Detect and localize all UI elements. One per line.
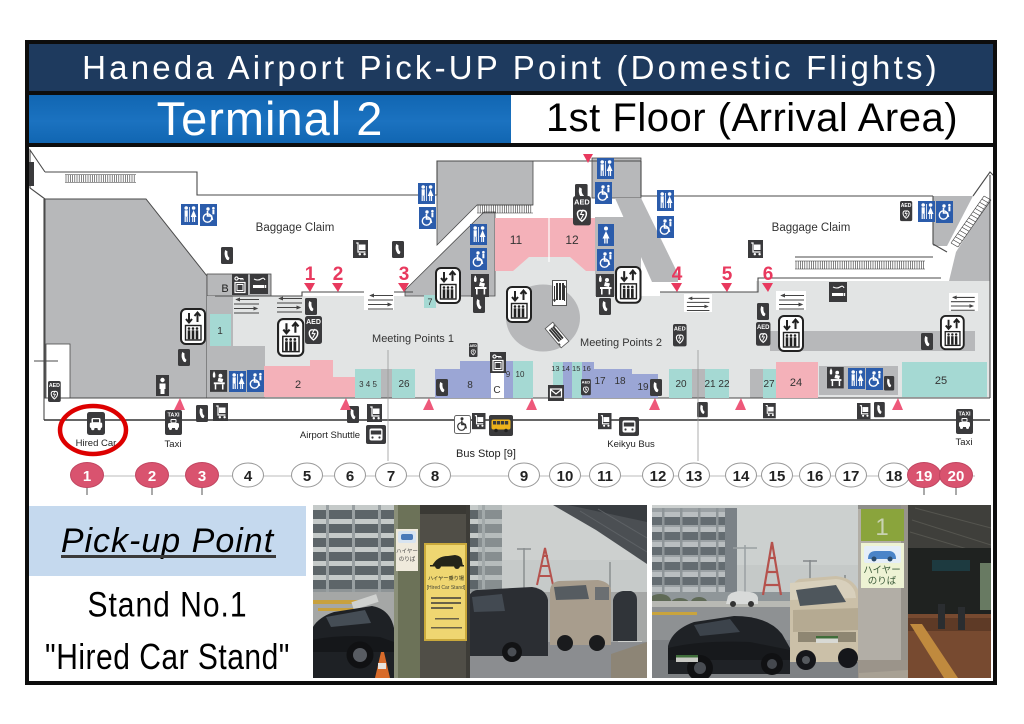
svg-text:Baggage Claim: Baggage Claim [256,222,335,234]
svg-text:Meeting Points 2: Meeting Points 2 [580,337,662,349]
svg-text:ハイヤー: ハイヤー [863,565,901,576]
svg-text:14: 14 [733,468,750,485]
svg-text:9: 9 [506,370,511,379]
svg-text:2: 2 [295,379,301,391]
svg-text:13: 13 [686,468,703,485]
svg-text:27: 27 [763,379,775,390]
svg-text:B: B [221,283,228,295]
svg-text:8: 8 [467,380,473,391]
svg-text:18: 18 [886,468,903,485]
svg-text:19: 19 [916,468,933,485]
svg-text:2: 2 [148,468,156,485]
svg-text:2: 2 [333,264,344,285]
svg-text:Meeting Points 1: Meeting Points 1 [372,333,454,345]
svg-text:26: 26 [398,379,410,390]
svg-text:25: 25 [935,375,947,387]
svg-text:16: 16 [807,468,824,485]
svg-text:18: 18 [614,376,626,387]
svg-text:Bus Stop [9]: Bus Stop [9] [456,448,516,460]
svg-text:4: 4 [672,264,683,285]
svg-text:1: 1 [305,264,316,285]
svg-text:10: 10 [516,370,525,379]
svg-text:7: 7 [387,468,395,485]
svg-text:11: 11 [597,468,613,485]
svg-text:17: 17 [594,376,606,387]
svg-text:13 14 15 16: 13 14 15 16 [551,364,591,373]
svg-text:のりば: のりば [399,555,416,563]
svg-text:9: 9 [520,468,528,485]
svg-text:Taxi: Taxi [956,437,973,448]
svg-text:のりば: のりば [868,576,897,587]
svg-text:6: 6 [346,468,354,485]
svg-text:20: 20 [675,379,687,390]
svg-text:[Hired Car Stand]: [Hired Car Stand] [427,585,466,591]
svg-text:3: 3 [399,264,410,285]
svg-text:Baggage Claim: Baggage Claim [772,222,851,234]
svg-text:5: 5 [722,264,733,285]
svg-text:10: 10 [557,468,574,485]
svg-text:6: 6 [763,264,774,285]
svg-text:12: 12 [565,233,579,247]
svg-text:Airport Shuttle: Airport Shuttle [300,430,360,441]
svg-text:5: 5 [303,468,311,485]
svg-text:1: 1 [83,468,91,485]
svg-text:24: 24 [790,377,802,389]
svg-text:20: 20 [948,468,965,485]
svg-text:ハイヤー: ハイヤー [396,549,418,555]
svg-text:8: 8 [431,468,439,485]
svg-text:17: 17 [843,468,860,485]
svg-text:21 22: 21 22 [704,379,729,390]
svg-text:12: 12 [650,468,667,485]
svg-text:Taxi: Taxi [165,439,182,450]
svg-text:1: 1 [875,514,888,541]
svg-text:15: 15 [769,468,786,485]
svg-text:Hired Car: Hired Car [76,438,117,449]
svg-text:Keikyu Bus: Keikyu Bus [607,439,655,450]
svg-text:7: 7 [427,297,432,307]
svg-text:19: 19 [637,382,649,393]
svg-text:3 4 5: 3 4 5 [359,380,377,389]
svg-text:11: 11 [510,233,523,247]
svg-text:C: C [493,385,500,396]
svg-text:ハイヤー乗り場: ハイヤー乗り場 [428,574,464,582]
svg-text:1: 1 [217,326,223,337]
svg-text:4: 4 [244,468,253,485]
svg-text:3: 3 [198,468,206,485]
